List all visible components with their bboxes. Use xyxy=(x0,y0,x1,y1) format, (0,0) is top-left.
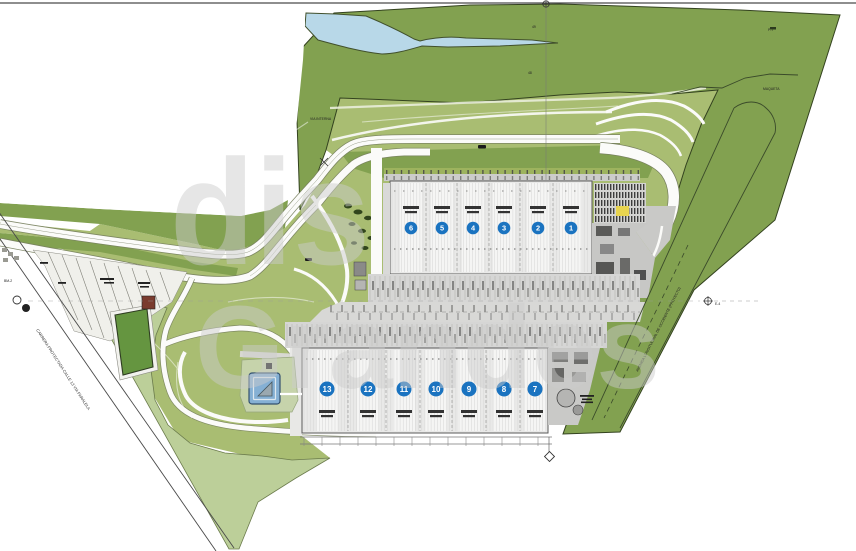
svg-text:Grandes: Grandes xyxy=(195,282,660,414)
svg-text:48: 48 xyxy=(528,71,532,75)
svg-text:5: 5 xyxy=(440,224,444,233)
svg-text:E-4: E-4 xyxy=(715,302,720,306)
svg-text:3: 3 xyxy=(502,224,506,233)
svg-text:2: 2 xyxy=(536,224,540,233)
svg-text:dis: dis xyxy=(170,128,370,296)
svg-text:6: 6 xyxy=(409,224,413,233)
svg-text:VIA INTERNA: VIA INTERNA xyxy=(310,117,332,121)
svg-text:49: 49 xyxy=(532,25,536,29)
svg-text:MAQUETA: MAQUETA xyxy=(763,87,780,91)
svg-text:1: 1 xyxy=(569,224,573,233)
svg-text:BM-2: BM-2 xyxy=(4,279,12,283)
